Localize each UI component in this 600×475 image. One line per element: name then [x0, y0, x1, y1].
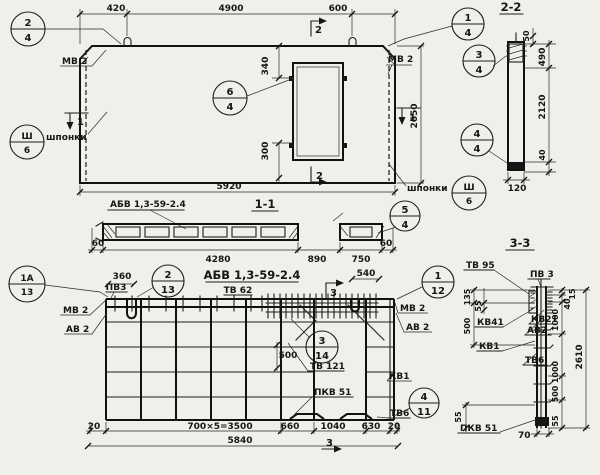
dim-20-right: 20	[388, 422, 401, 432]
detail-marker-6-4: 6 4	[213, 80, 289, 115]
svg-text:4: 4	[474, 129, 481, 140]
dim-660: 660	[281, 422, 300, 432]
dim-2610: 2610	[575, 344, 585, 369]
detail-marker-3-4: 3 4	[463, 45, 506, 77]
dim-5920: 5920	[216, 182, 241, 192]
reinforcement-plan-view: АБВ 1,3-59-2.4 ТВ 62 1А 13	[9, 265, 454, 453]
dim-40: 40	[563, 298, 572, 310]
detail-marker-2-4: 2 4	[11, 12, 121, 46]
svg-text:6: 6	[466, 197, 472, 207]
section-3-3-title: 3-3	[510, 236, 531, 250]
dim-15: 15	[568, 288, 577, 300]
detail-marker-5-4: 5 4	[378, 201, 420, 233]
dim-55b: 55	[551, 415, 560, 427]
svg-text:3: 3	[330, 288, 337, 299]
dim-340: 340	[261, 57, 271, 76]
label-tv95: ТВ 95	[466, 261, 495, 271]
svg-text:2: 2	[315, 25, 322, 36]
svg-text:1: 1	[465, 13, 472, 24]
section-mark-1-left: 1	[65, 113, 88, 130]
dim-70: 70	[518, 431, 531, 441]
section-2-2-title: 2-2	[501, 0, 522, 14]
dim-360: 360	[113, 272, 132, 282]
dim-20-left: 20	[88, 422, 101, 432]
label-kv1-33: КВ1	[479, 342, 499, 352]
dim-5840: 5840	[227, 436, 252, 446]
label-kv41: КВ41	[477, 318, 504, 328]
svg-text:4: 4	[25, 33, 32, 44]
svg-text:4: 4	[465, 28, 472, 39]
rebar-grid	[106, 294, 394, 420]
svg-text:6: 6	[227, 87, 234, 98]
svg-text:4: 4	[227, 102, 234, 113]
label-shponki-left: шпонки	[46, 133, 87, 143]
label-av2-plan-left: АВ 2	[66, 325, 89, 335]
dim-40: 40	[538, 149, 547, 161]
dim-1000a: 1000	[551, 308, 560, 331]
dim-55c: 55	[454, 411, 463, 423]
label-kv1-plan: КВ1	[389, 372, 409, 382]
dim-2120: 2120	[538, 94, 548, 119]
svg-text:13: 13	[161, 285, 175, 296]
svg-text:4: 4	[476, 65, 483, 76]
dim-300: 300	[261, 142, 271, 161]
dim-700x5: 700×5=3500	[187, 422, 252, 432]
section-2-2-view: 2-2 50 490 2120 40 120 3 4 4 4	[461, 0, 556, 194]
dim-55a: 55	[474, 300, 483, 312]
dim-600: 600	[329, 4, 348, 14]
panel-drawing: 420 4900 600 5920 2650 340 300 2 2 1	[0, 0, 600, 475]
detail-marker-sh-6-right: Ш 6	[452, 176, 486, 210]
svg-text:1: 1	[435, 271, 442, 282]
detail-marker-1-12: 1 12	[397, 266, 454, 299]
svg-text:Ш: Ш	[21, 132, 32, 142]
label-av2-plan-right: АВ 2	[406, 323, 429, 333]
label-shponki-right: шпонки	[407, 184, 448, 194]
section-mark-3-bottom: 3	[322, 438, 342, 453]
drawing-sheet: 420 4900 600 5920 2650 340 300 2 2 1	[0, 0, 600, 475]
label-mv2-top-left: МВ 2	[62, 57, 87, 67]
label-tv6-33: ТВ6	[525, 356, 544, 366]
svg-text:6: 6	[24, 146, 30, 156]
dim-750: 750	[352, 255, 371, 265]
svg-text:11: 11	[417, 407, 431, 418]
detail-marker-4-4: 4 4	[461, 124, 507, 163]
dim-420: 420	[107, 4, 126, 14]
dim-4280: 4280	[205, 255, 230, 265]
dim-500-left: 500	[463, 317, 472, 334]
detail-marker-sh-6-left: Ш 6	[10, 125, 44, 159]
svg-text:4: 4	[421, 392, 428, 403]
svg-text:14: 14	[315, 351, 329, 362]
dim-50: 50	[522, 30, 531, 42]
section-mark-3-top: 3	[326, 280, 344, 300]
svg-text:3: 3	[319, 336, 326, 347]
section-1-1-title: 1-1	[255, 197, 276, 211]
dim-120: 120	[508, 184, 527, 194]
svg-text:13: 13	[21, 288, 34, 298]
dim-1000b: 1000	[551, 360, 560, 383]
dim-4900: 4900	[218, 4, 243, 14]
dim-630: 630	[362, 422, 381, 432]
svg-text:1А: 1А	[20, 274, 33, 284]
detail-marker-1a-13: 1А 13	[9, 266, 108, 302]
dim-135: 135	[463, 288, 472, 305]
svg-text:2: 2	[25, 18, 32, 29]
svg-text:5: 5	[402, 205, 409, 216]
svg-text:3: 3	[326, 438, 333, 449]
svg-text:12: 12	[431, 286, 445, 297]
label-tv121: ТВ 121	[310, 362, 345, 372]
dim-890: 890	[308, 255, 327, 265]
label-av2-33: АВ2	[527, 326, 547, 336]
detail-marker-2-13: 2 13	[137, 265, 184, 297]
svg-text:4: 4	[402, 220, 409, 231]
dim-500-right: 500	[551, 385, 560, 402]
dim-60-left: 60	[92, 239, 105, 249]
dim-540: 540	[357, 269, 376, 279]
svg-text:4: 4	[474, 144, 481, 155]
dim-60-right: 60	[380, 239, 393, 249]
section-mark-2-top: 2	[311, 18, 327, 37]
label-pkv51-plan: ПКВ 51	[314, 388, 351, 398]
svg-text:2: 2	[165, 270, 172, 281]
dim-1040: 1040	[320, 422, 345, 432]
label-mv2-plan-left: МВ 2	[63, 306, 88, 316]
dim-490: 490	[538, 48, 548, 67]
section-1-1-view: АБВ 1,3-59-2.4 1-1 60 4280 890 750 60	[88, 197, 397, 265]
reinforcement-plan-title: АБВ 1,3-59-2.4	[204, 268, 301, 282]
panel-elevation-view: 420 4900 600 5920 2650 340 300 2 2 1	[10, 4, 486, 233]
label-mv2-plan-right: МВ 2	[400, 304, 425, 314]
svg-text:Ш: Ш	[463, 183, 474, 193]
detail-marker-1-4: 1 4	[388, 8, 484, 46]
svg-text:3: 3	[476, 50, 483, 61]
svg-text:1: 1	[409, 113, 416, 124]
section-3-3-view: 3-3 ТВ 95 ПВ 3 КВ41 КВ21 АВ2 КВ1 ТВ6 ПКВ…	[454, 236, 590, 441]
svg-text:1: 1	[77, 117, 84, 128]
label-pv3-33: ПВ 3	[530, 270, 554, 280]
label-mv2-top-right: МВ 2	[388, 55, 413, 65]
svg-text:2: 2	[316, 171, 323, 182]
label-tv6-plan: ТВ6	[390, 409, 409, 419]
section-1-1-label: АБВ 1,3-59-2.4	[110, 200, 186, 210]
